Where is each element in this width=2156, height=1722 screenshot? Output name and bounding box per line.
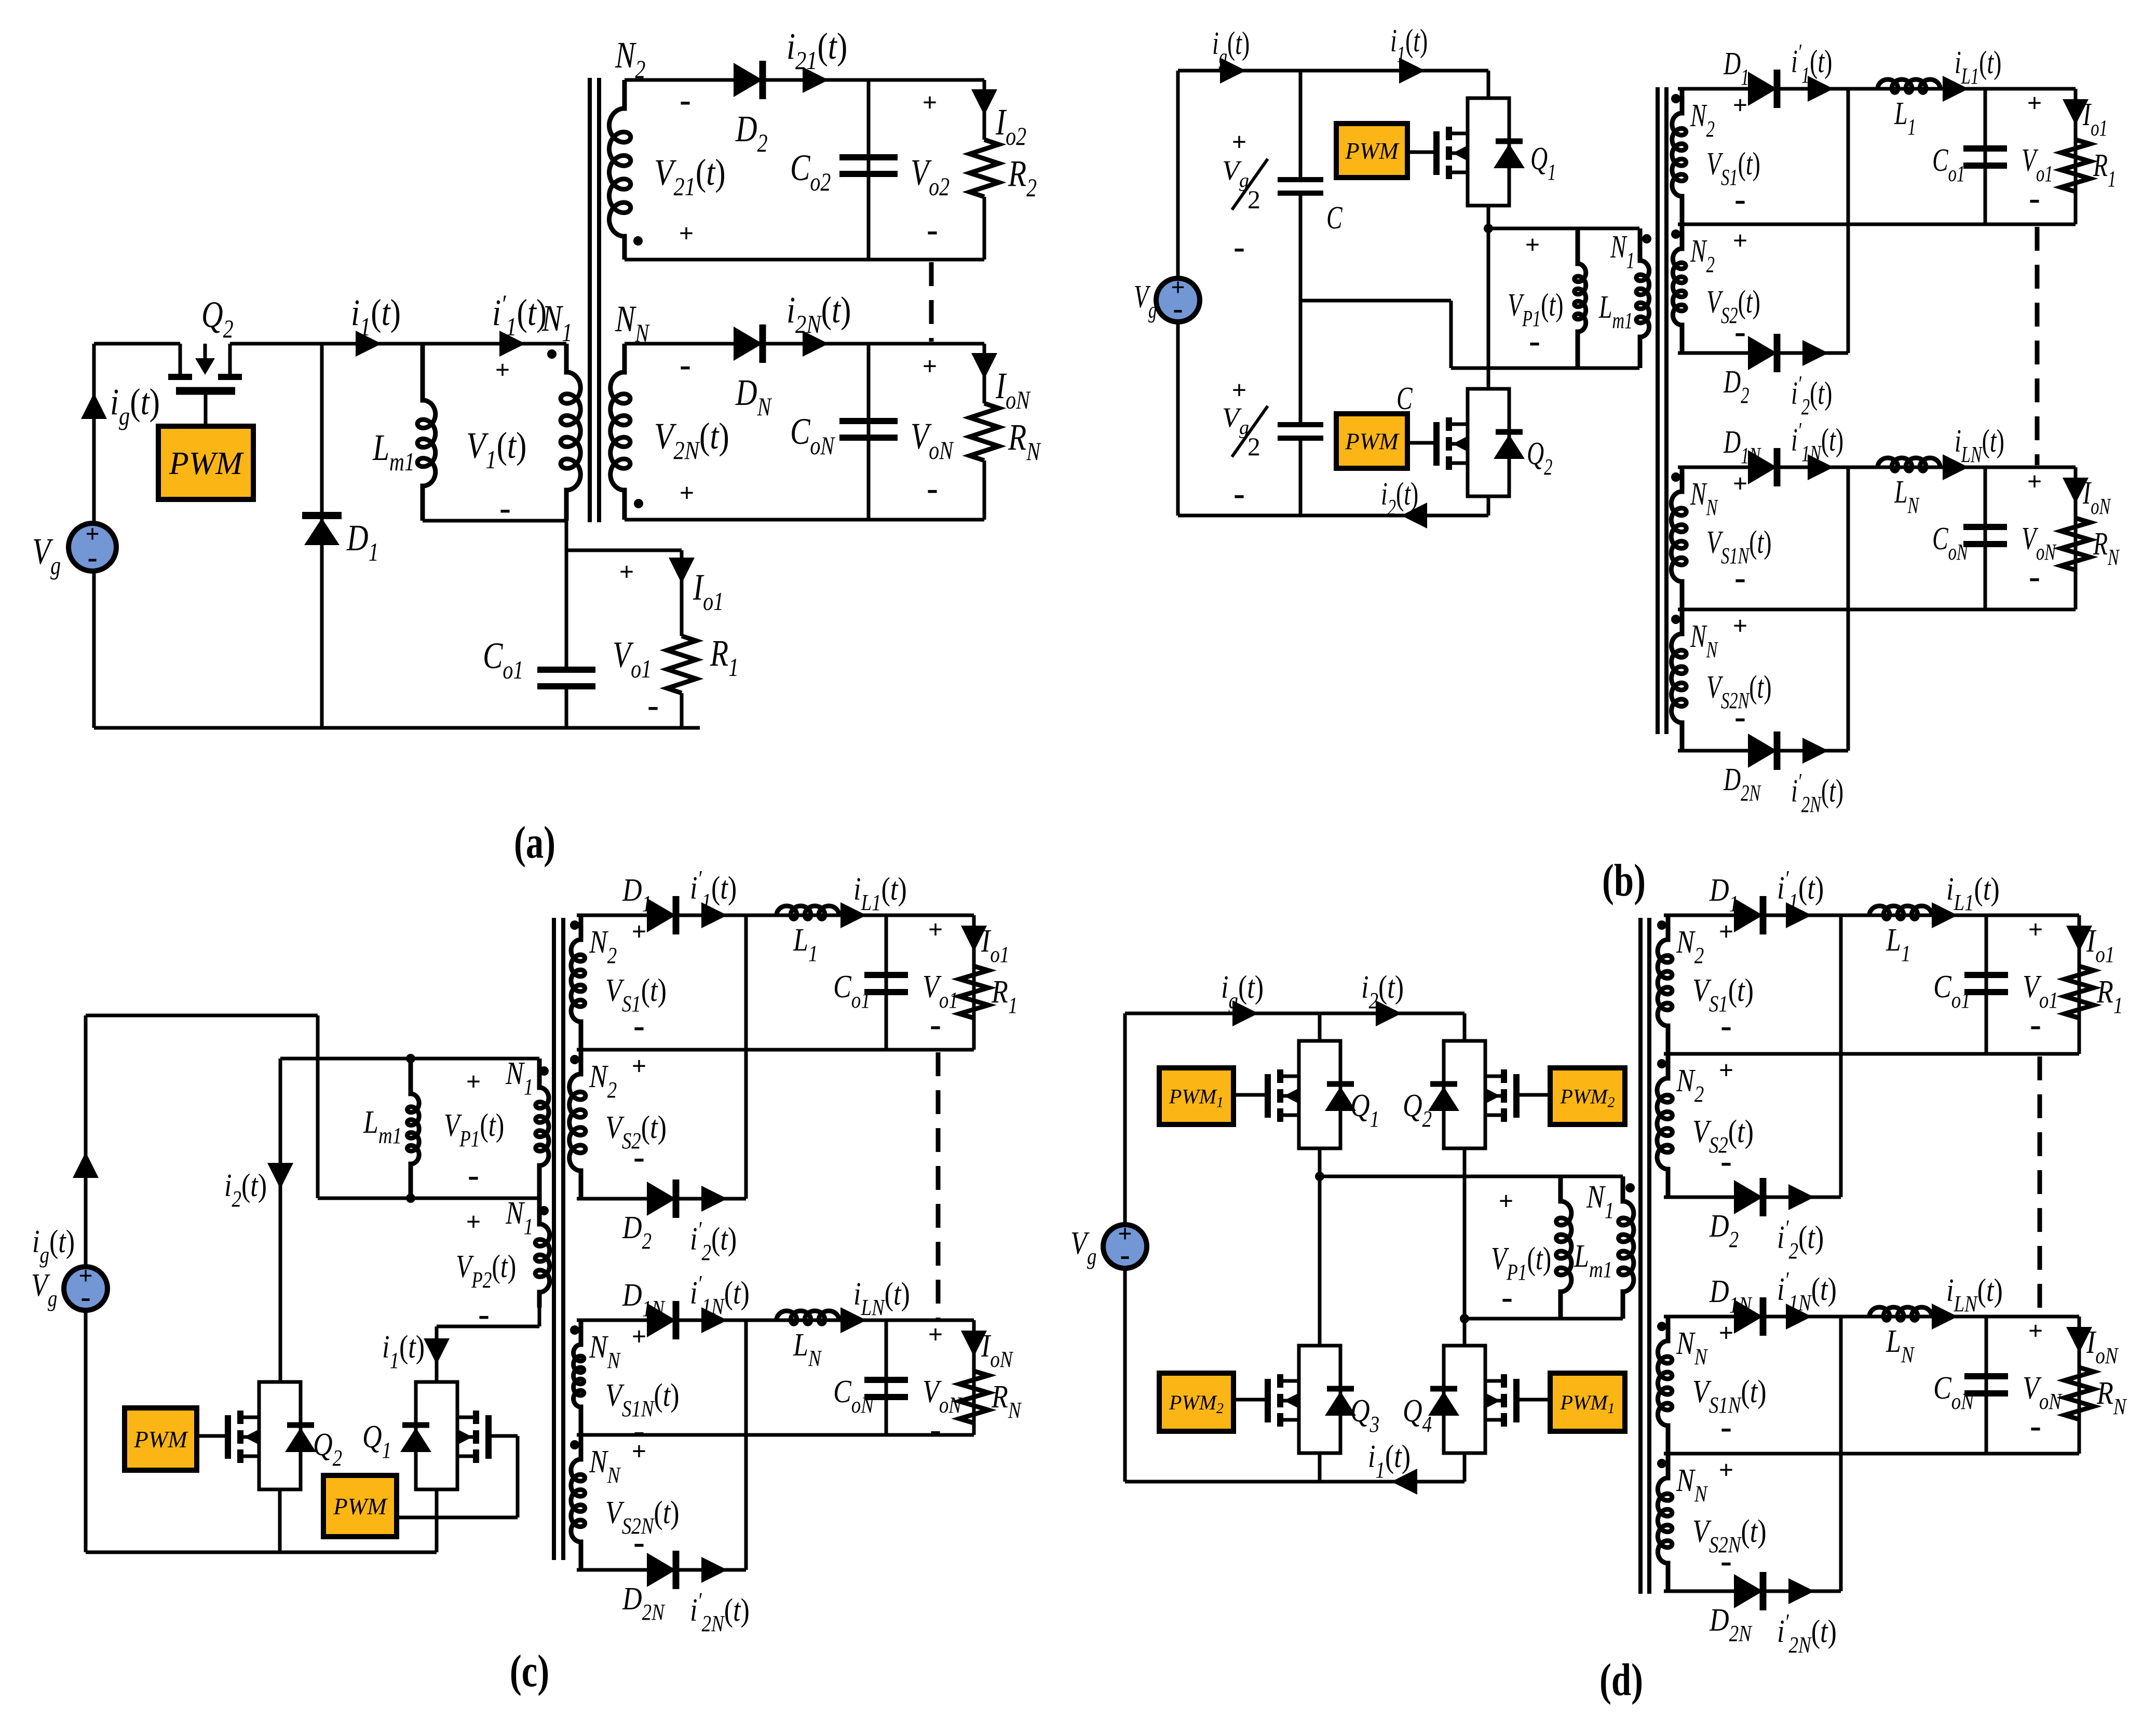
svg-text:-: - xyxy=(1233,474,1245,512)
svg-text:+: + xyxy=(495,355,510,384)
svg-text:2: 2 xyxy=(1248,432,1260,461)
svg-text:-: - xyxy=(680,346,691,384)
svg-text:PWM: PWM xyxy=(333,1494,388,1520)
svg-text:+: + xyxy=(1232,127,1247,156)
svg-text:(c): (c) xyxy=(510,1646,549,1697)
svg-text:-: - xyxy=(1233,228,1245,266)
svg-text:+: + xyxy=(466,1207,481,1236)
svg-text:C: C xyxy=(1396,380,1413,416)
svg-text:(d): (d) xyxy=(1599,1655,1643,1705)
svg-text:PWM: PWM xyxy=(1345,138,1400,164)
svg-text:PWM: PWM xyxy=(133,1427,188,1453)
svg-text:+: + xyxy=(1719,1455,1734,1484)
svg-text:+: + xyxy=(1719,917,1734,946)
svg-text:+: + xyxy=(1499,1186,1514,1215)
svg-text:-: - xyxy=(1529,322,1540,360)
svg-text:+: + xyxy=(1719,1055,1734,1084)
svg-text:+: + xyxy=(1733,611,1748,640)
svg-text:PWM1: PWM1 xyxy=(1169,1085,1224,1111)
svg-text:-: - xyxy=(87,540,97,574)
svg-text:-: - xyxy=(2029,179,2040,217)
svg-text:+: + xyxy=(466,1067,481,1096)
svg-text:+: + xyxy=(632,1322,647,1351)
svg-text:+: + xyxy=(2027,88,2042,117)
svg-text:+: + xyxy=(1525,230,1540,259)
svg-text:PWM1: PWM1 xyxy=(1560,1391,1615,1417)
svg-text:PWM: PWM xyxy=(169,446,245,481)
svg-text:-: - xyxy=(930,1006,941,1043)
svg-text:-: - xyxy=(927,211,938,249)
svg-text:PWM2: PWM2 xyxy=(1169,1391,1224,1417)
svg-text:+: + xyxy=(680,478,695,507)
svg-text:-: - xyxy=(927,469,938,507)
svg-text:-: - xyxy=(680,81,691,119)
svg-text:+: + xyxy=(923,351,938,381)
svg-text:PWM: PWM xyxy=(1345,428,1400,454)
svg-text:+: + xyxy=(2027,467,2042,496)
svg-text:-: - xyxy=(647,686,659,724)
svg-text:-: - xyxy=(1120,1238,1130,1272)
svg-text:(b): (b) xyxy=(1602,856,1646,906)
svg-text:+: + xyxy=(679,219,694,248)
svg-text:C: C xyxy=(1326,199,1343,235)
svg-text:PWM2: PWM2 xyxy=(1560,1085,1615,1111)
svg-text:+: + xyxy=(632,1051,647,1080)
svg-text:+: + xyxy=(632,917,647,946)
svg-text:+: + xyxy=(923,88,938,117)
svg-text:-: - xyxy=(2029,558,2040,595)
svg-text:2: 2 xyxy=(1248,185,1260,214)
svg-text:-: - xyxy=(1173,292,1183,326)
svg-text:+: + xyxy=(1733,226,1748,255)
svg-text:-: - xyxy=(468,1156,479,1194)
svg-text:+: + xyxy=(1719,1318,1734,1347)
svg-text:-: - xyxy=(1501,1278,1513,1316)
svg-text:+: + xyxy=(1733,90,1748,119)
svg-text:+: + xyxy=(619,557,634,586)
svg-text:-: - xyxy=(499,489,511,527)
svg-text:+: + xyxy=(928,1320,943,1349)
svg-text:+: + xyxy=(928,915,943,944)
svg-text:+: + xyxy=(1733,469,1748,498)
svg-text:+: + xyxy=(2028,1316,2043,1345)
svg-text:+: + xyxy=(632,1436,647,1466)
svg-text:(a): (a) xyxy=(514,818,555,868)
svg-text:-: - xyxy=(930,1411,941,1448)
svg-text:+: + xyxy=(2028,915,2043,944)
svg-text:-: - xyxy=(2030,1407,2041,1445)
svg-text:-: - xyxy=(2030,1006,2041,1043)
svg-text:+: + xyxy=(1232,375,1247,404)
svg-text:-: - xyxy=(80,1280,90,1314)
